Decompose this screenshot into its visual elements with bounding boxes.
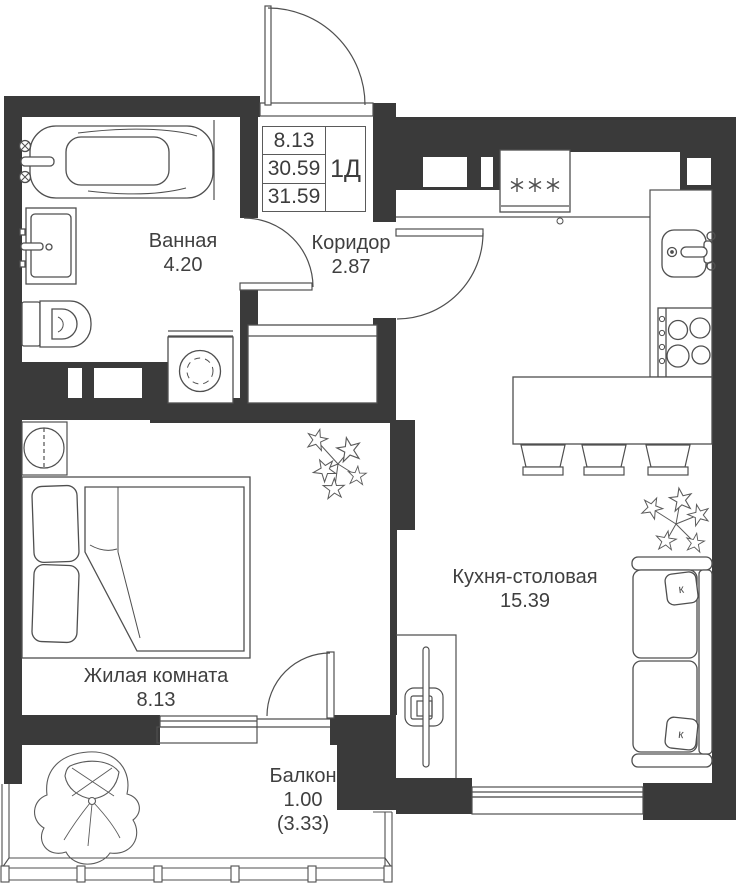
title-block: 8.13 30.59 31.59 1Д — [262, 126, 366, 212]
room-label-bathroom: Ванная 4.20 — [149, 229, 218, 277]
kitchen-sink — [662, 230, 715, 277]
bathroom-door — [240, 218, 313, 290]
hanging-chair — [35, 752, 140, 864]
washing-machine — [168, 331, 233, 403]
stove — [658, 308, 712, 377]
room-area: 15.39 — [452, 589, 597, 613]
kitchen-door — [396, 229, 483, 319]
room-name: Балкон — [269, 764, 336, 788]
plant-icon — [639, 486, 714, 552]
room-area: 8.13 — [84, 688, 228, 712]
unit-type-value: 1Д — [326, 127, 365, 211]
bathtub — [20, 126, 214, 198]
room-name: Ванная — [149, 229, 218, 253]
room-name: Коридор — [312, 231, 391, 255]
sofa: к к — [632, 557, 712, 767]
entrance-door — [260, 6, 373, 116]
area-without-balcony-value: 30.59 — [263, 154, 325, 182]
living-area-value: 8.13 — [263, 127, 325, 154]
bar-stools — [521, 445, 690, 475]
tv-unit — [396, 635, 456, 778]
room-area: 1.00 — [269, 788, 336, 812]
total-area-value: 31.59 — [263, 183, 325, 211]
bar-table — [513, 377, 712, 444]
bedroom-window — [157, 716, 257, 743]
kitchen-window — [472, 787, 643, 814]
room-area-coefficient: (3.33) — [269, 812, 336, 836]
floor-plan: к к — [0, 0, 736, 888]
wardrobe — [248, 325, 377, 403]
sofa-pillow: к — [664, 571, 699, 606]
room-label-corridor: Коридор 2.87 — [312, 231, 391, 279]
room-name: Кухня-столовая — [452, 565, 597, 589]
nightstand-lamp — [22, 422, 67, 475]
fridge — [500, 150, 570, 224]
room-label-kitchen: Кухня-столовая 15.39 — [452, 565, 597, 613]
room-name: Жилая комната — [84, 664, 228, 688]
sofa-pillow: к — [664, 717, 698, 751]
bathroom-sink — [20, 208, 76, 284]
room-area: 4.20 — [149, 253, 218, 277]
floor-plan-drawing: к к — [0, 0, 736, 888]
plant-icon — [305, 427, 367, 502]
toilet — [22, 301, 91, 347]
title-block-areas: 8.13 30.59 31.59 — [263, 127, 326, 211]
bed — [22, 477, 250, 658]
balcony-door — [257, 652, 334, 727]
room-label-balcony: Балкон 1.00 (3.33) — [269, 764, 336, 836]
room-label-living: Жилая комната 8.13 — [84, 664, 228, 712]
room-area: 2.87 — [312, 255, 391, 279]
